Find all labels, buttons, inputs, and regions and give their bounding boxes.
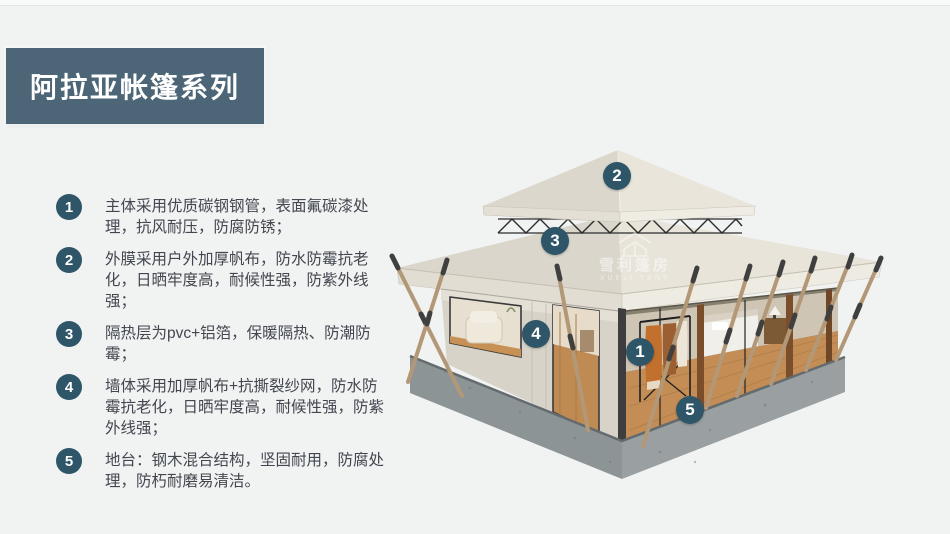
feature-number-badge: 4 [56,374,82,400]
feature-item: 3隔热层为pvc+铝箔，保暖隔热、防潮防霉； [56,323,390,365]
feature-text: 墙体采用加厚帆布+抗撕裂纱网，防水防霉抗老化，日晒牢度高，耐候性强，防紫外线强； [105,376,390,439]
feature-number-badge: 2 [56,247,82,273]
feature-number-badge: 5 [56,448,82,474]
tent-marker-4: 4 [522,320,550,348]
tent-drawing [380,130,900,510]
feature-text: 隔热层为pvc+铝箔，保暖隔热、防潮防霉； [105,323,390,365]
feature-text: 地台：钢木混合结构，坚固耐用，防腐处理，防朽耐磨易清洁。 [105,450,390,492]
feature-item: 2外膜采用户外加厚帆布，防水防霉抗老化，日晒牢度高，耐候性强，防紫外线强； [56,249,390,312]
feature-text: 主体采用优质碳钢钢管，表面氟碳漆处理，抗风耐压，防腐防锈； [105,196,390,238]
tent-marker-5: 5 [676,396,704,424]
tent-illustration [380,130,900,510]
feature-item: 4墙体采用加厚帆布+抗撕裂纱网，防水防霉抗老化，日晒牢度高，耐候性强，防紫外线强… [56,376,390,439]
feature-number-badge: 3 [56,321,82,347]
feature-number-badge: 1 [56,194,82,220]
feature-text: 外膜采用户外加厚帆布，防水防霉抗老化，日晒牢度高，耐候性强，防紫外线强； [105,249,390,312]
feature-list: 1主体采用优质碳钢钢管，表面氟碳漆处理，抗风耐压，防腐防锈；2外膜采用户外加厚帆… [56,196,390,492]
feature-item: 5地台：钢木混合结构，坚固耐用，防腐处理，防朽耐磨易清洁。 [56,450,390,492]
title-banner: 阿拉亚帐篷系列 [6,48,264,124]
tent-marker-1: 1 [626,338,654,366]
slide: 阿拉亚帐篷系列 1主体采用优质碳钢钢管，表面氟碳漆处理，抗风耐压，防腐防锈；2外… [0,0,950,534]
tent-marker-2: 2 [603,162,631,190]
feature-item: 1主体采用优质碳钢钢管，表面氟碳漆处理，抗风耐压，防腐防锈； [56,196,390,238]
top-strip [0,0,950,6]
tent-marker-3: 3 [541,227,569,255]
page-title: 阿拉亚帐篷系列 [6,66,240,106]
corner-post [618,308,626,447]
